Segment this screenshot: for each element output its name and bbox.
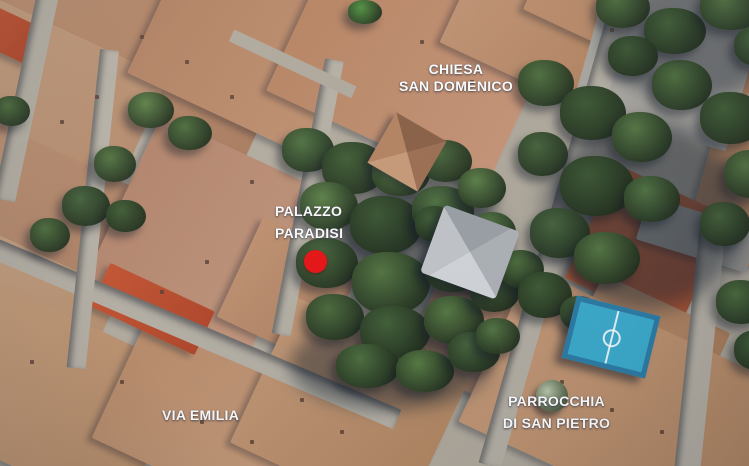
tree — [30, 218, 70, 252]
label-line: PALAZZO — [275, 200, 343, 222]
chimney — [185, 60, 189, 64]
label-via-emilia: VIA EMILIA — [162, 405, 239, 425]
chimney — [95, 95, 99, 99]
tree — [348, 0, 382, 24]
chimney — [250, 440, 254, 444]
tree — [306, 294, 364, 340]
chimney — [250, 180, 254, 184]
tree — [336, 344, 400, 388]
label-line: CHIESA — [368, 61, 544, 78]
label-line: DI SAN PIETRO — [464, 412, 649, 434]
tree — [624, 176, 680, 222]
aerial-map: CHIESA SAN DOMENICO PALAZZO PARADISI VIA… — [0, 0, 749, 466]
tree — [476, 318, 520, 354]
tree — [352, 252, 430, 314]
label-chiesa-san-domenico: CHIESA SAN DOMENICO — [368, 61, 544, 95]
tree — [62, 186, 110, 226]
tree — [608, 36, 658, 76]
tree — [168, 116, 212, 150]
label-line: PARROCCHIA — [464, 390, 649, 412]
label-palazzo-paradisi: PALAZZO PARADISI — [275, 200, 343, 244]
chimney — [205, 260, 209, 264]
tree — [396, 350, 454, 392]
palazzo-paradisi-marker — [304, 250, 327, 273]
tree — [700, 202, 749, 246]
label-line: VIA EMILIA — [162, 405, 239, 425]
court-center-circle — [601, 327, 623, 349]
chimney — [30, 360, 34, 364]
chimney — [140, 35, 144, 39]
tree — [128, 92, 174, 128]
tree — [700, 92, 749, 144]
tree — [574, 232, 640, 284]
chimney — [420, 40, 424, 44]
chimney — [300, 398, 304, 402]
tree — [716, 280, 749, 324]
label-parrocchia-di-san-pietro: PARROCCHIA DI SAN PIETRO — [464, 390, 649, 434]
label-line: SAN DOMENICO — [368, 78, 544, 95]
chimney — [120, 380, 124, 384]
chimney — [60, 120, 64, 124]
tree — [94, 146, 136, 182]
chimney — [230, 95, 234, 99]
chimney — [610, 28, 614, 32]
chimney — [340, 430, 344, 434]
tree — [518, 132, 568, 176]
tree — [612, 112, 672, 162]
chimney — [660, 430, 664, 434]
tree — [106, 200, 146, 232]
chimney — [160, 290, 164, 294]
tree — [560, 156, 634, 216]
label-line: PARADISI — [275, 222, 343, 244]
tree — [458, 168, 506, 208]
